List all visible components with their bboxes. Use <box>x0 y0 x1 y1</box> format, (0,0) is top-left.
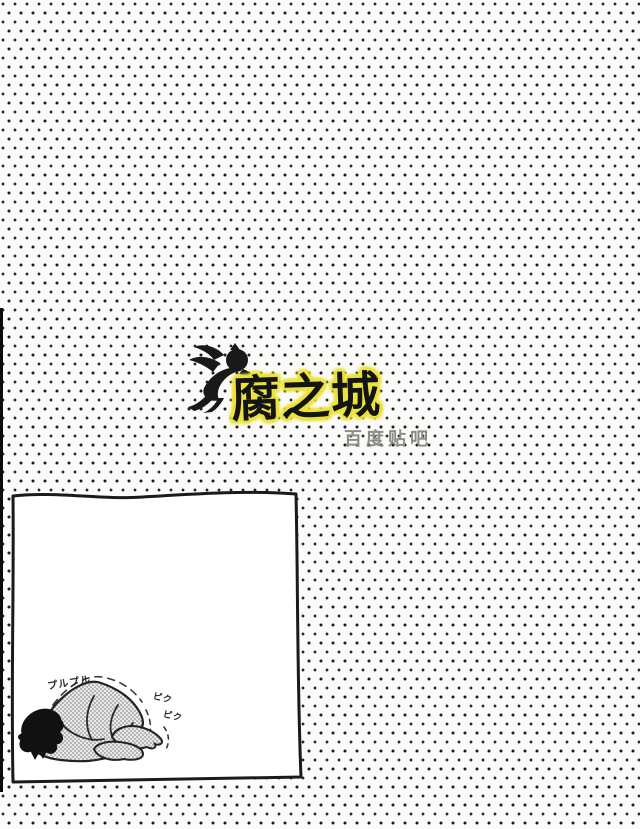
comic-panel <box>0 480 320 800</box>
logo-title: 腐之城 <box>230 367 392 430</box>
logo-subtitle: 百度贴吧 <box>344 425 432 451</box>
crouched-figure-illustration <box>0 480 320 800</box>
